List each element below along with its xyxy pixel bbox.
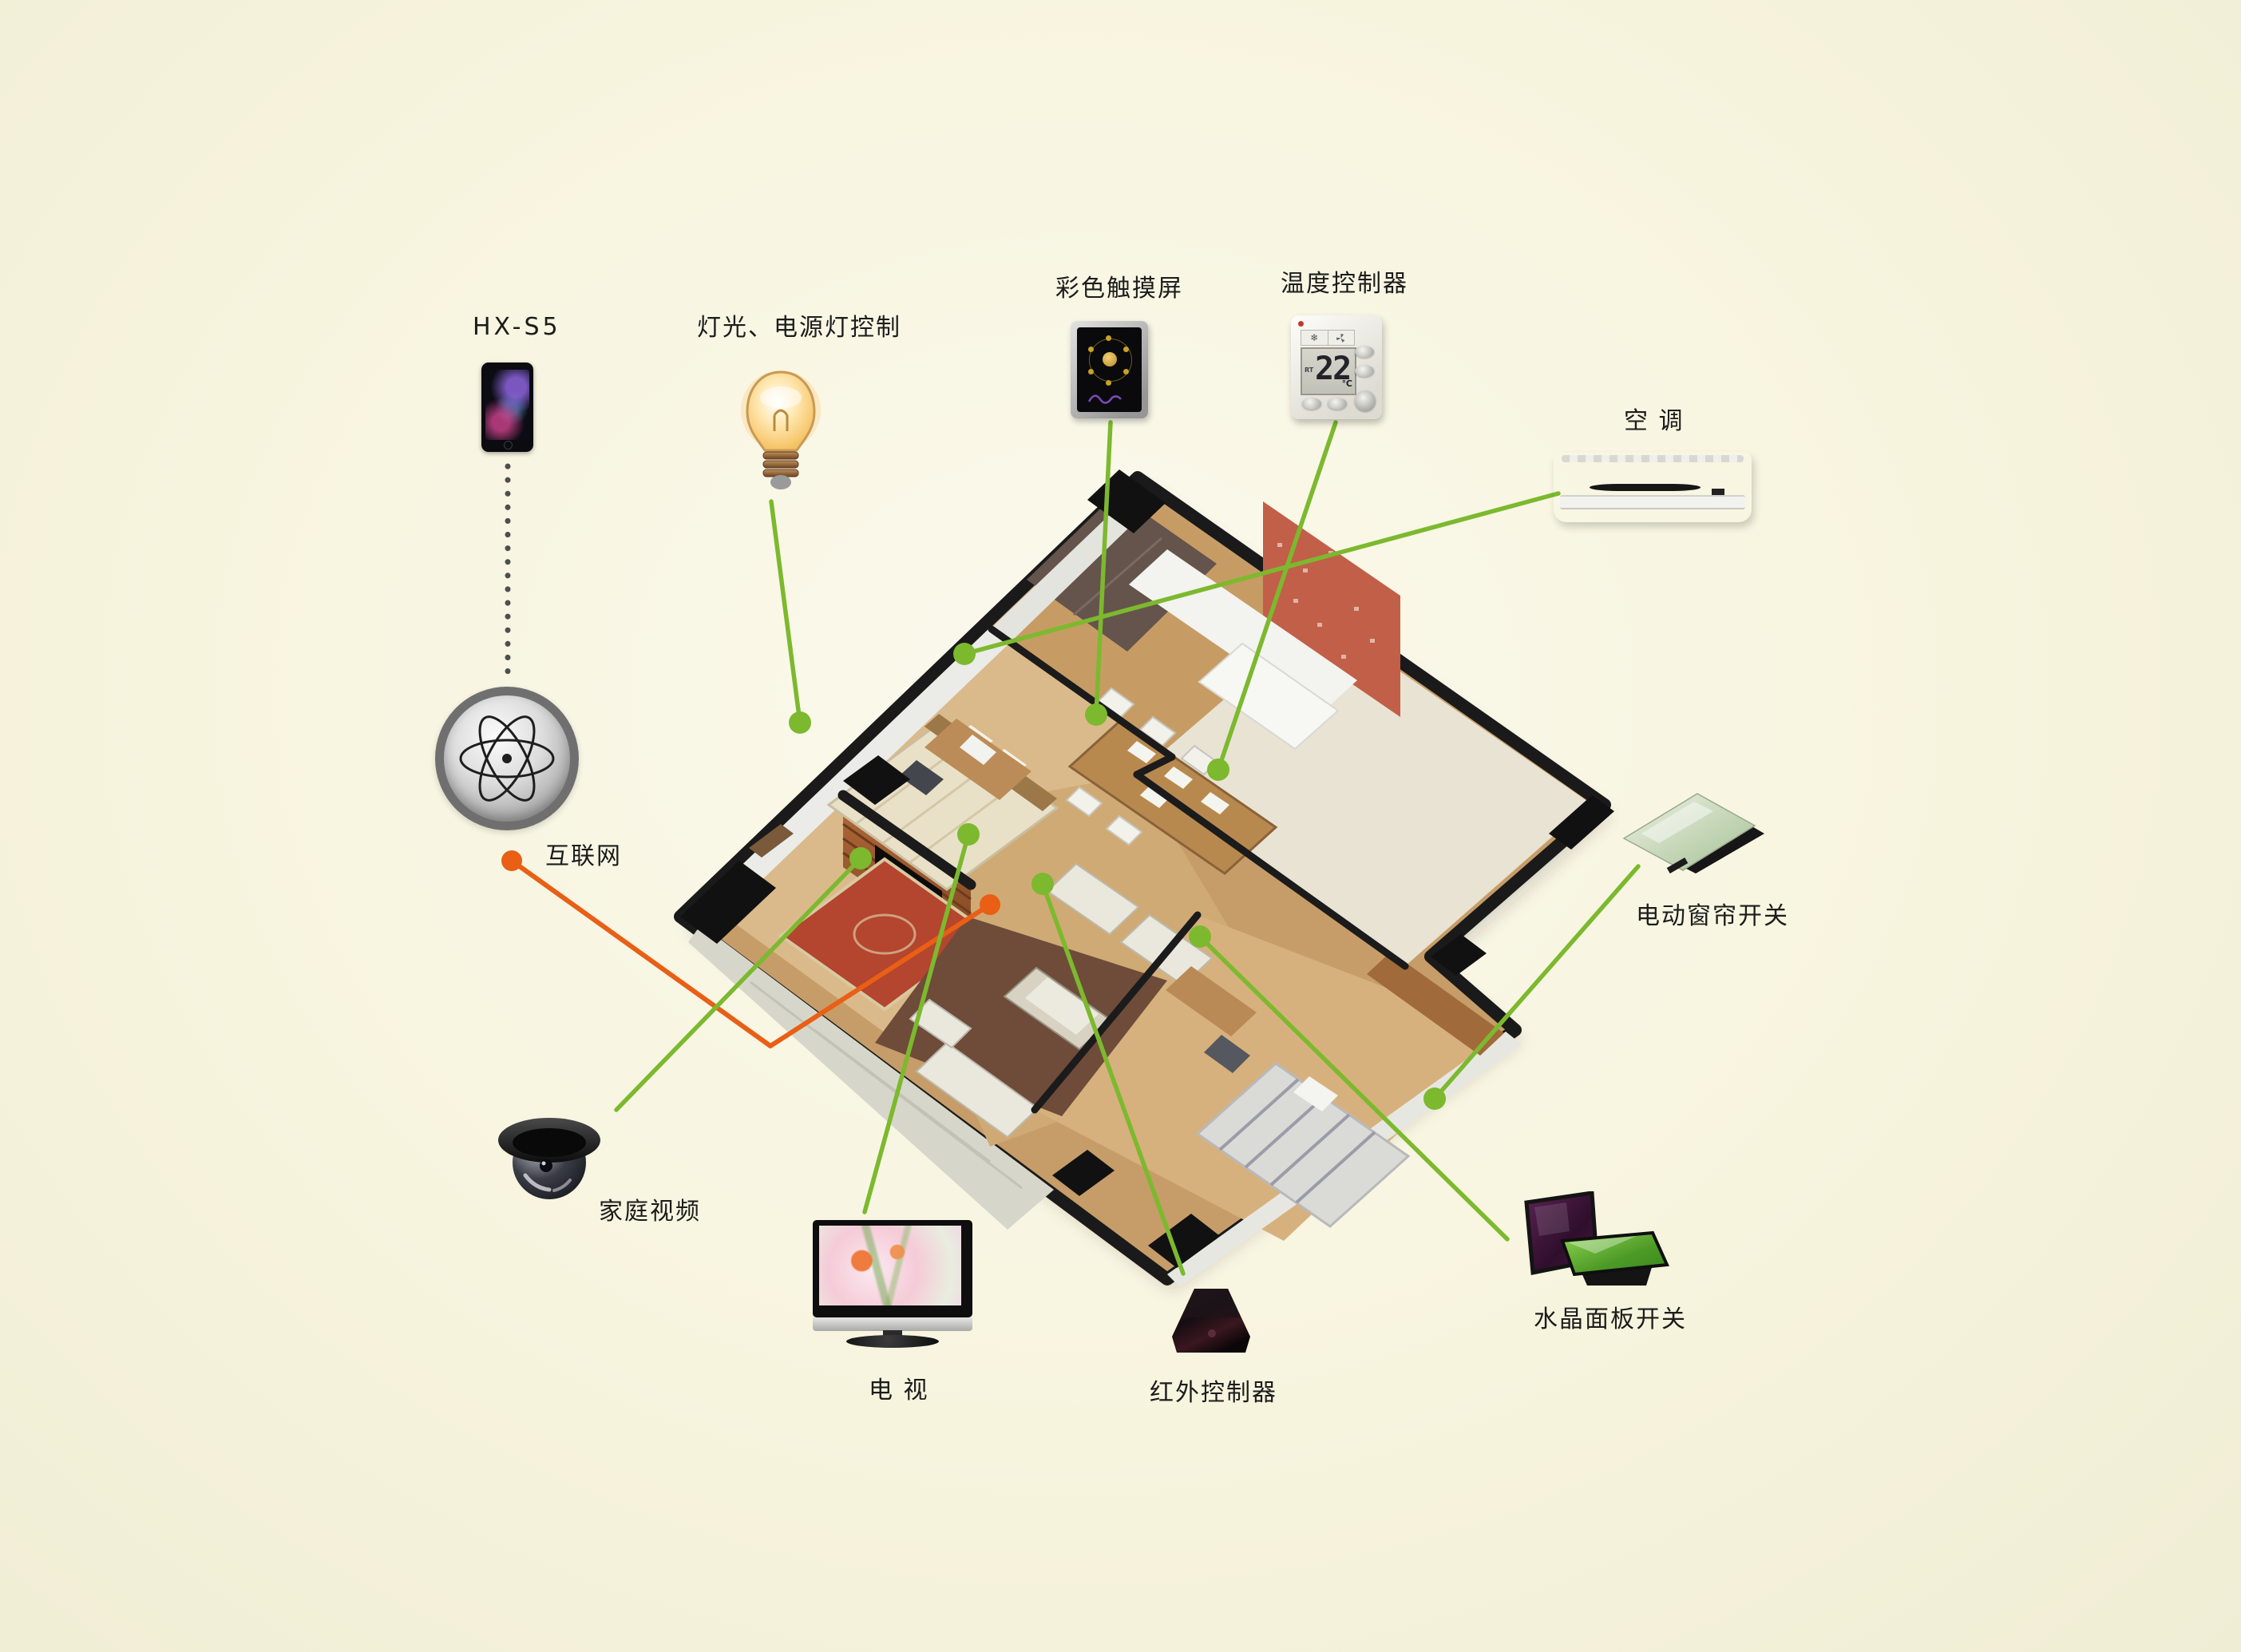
curtain-switch-icon — [1617, 792, 1766, 874]
label-camera: 家庭视频 — [599, 1191, 701, 1226]
label-light: 灯光、电源灯控制 — [697, 307, 901, 343]
node-dot-ac — [953, 643, 976, 665]
television-icon — [813, 1220, 972, 1348]
air-conditioner-icon — [1554, 452, 1752, 522]
house-floorplan — [680, 469, 1614, 1290]
thermostat-button — [1328, 398, 1347, 410]
phone-screen — [485, 370, 529, 440]
thermostat-button — [1302, 398, 1321, 410]
node-dot-ir — [1031, 873, 1054, 895]
node-dot-thermostat — [1207, 759, 1229, 781]
light-bulb-icon — [741, 366, 821, 495]
tv-screen — [819, 1226, 961, 1305]
node-dot-tv — [957, 823, 980, 846]
label-internet: 互联网 — [545, 836, 622, 871]
node-dot-touchscreen — [1085, 703, 1107, 726]
label-ac: 空 调 — [1624, 401, 1685, 436]
smart-home-diagram — [0, 0, 2241, 1652]
thermostat-down-button — [1355, 365, 1374, 377]
thermostat-up-button — [1355, 346, 1374, 358]
thermostat-icon: ❄ RT 22 ℃ — [1291, 315, 1382, 419]
touch-panel-screen — [1077, 327, 1142, 412]
thermostat-unit: ℃ — [1342, 378, 1352, 389]
label-curtain: 电动窗帘开关 — [1636, 896, 1789, 931]
label-crystal: 水晶面板开关 — [1534, 1299, 1687, 1334]
node-dot-curtain — [1423, 1087, 1446, 1110]
dome-camera-icon — [497, 1116, 602, 1202]
thermostat-power-button — [1355, 390, 1376, 411]
label-touchscreen: 彩色触摸屏 — [1055, 268, 1183, 303]
node-dot-camera — [849, 847, 872, 870]
node-dot-light — [789, 711, 811, 734]
node-dot-internet — [501, 850, 522, 871]
touch-panel-icon — [1071, 321, 1148, 418]
thermostat-led — [1298, 321, 1304, 327]
phone-home-button — [504, 441, 513, 450]
thermostat-lcd: RT 22 ℃ — [1301, 347, 1356, 395]
thermostat-mode: RT — [1305, 366, 1313, 374]
crystal-switch-icon — [1518, 1191, 1670, 1287]
node-dot-crystal — [1189, 925, 1211, 948]
snowflake-icon: ❄ — [1301, 331, 1328, 345]
label-tv: 电 视 — [869, 1370, 929, 1405]
link-light — [771, 501, 800, 723]
fan-icon — [1328, 331, 1355, 345]
label-ir: 红外控制器 — [1150, 1373, 1277, 1408]
label-phone: HX-S5 — [473, 313, 561, 341]
atom-globe-icon — [435, 687, 579, 830]
smartphone-icon — [481, 362, 533, 452]
node-dot-home-gateway — [980, 894, 1000, 915]
ir-controller-icon — [1170, 1287, 1252, 1354]
label-thermostat: 温度控制器 — [1281, 263, 1408, 299]
